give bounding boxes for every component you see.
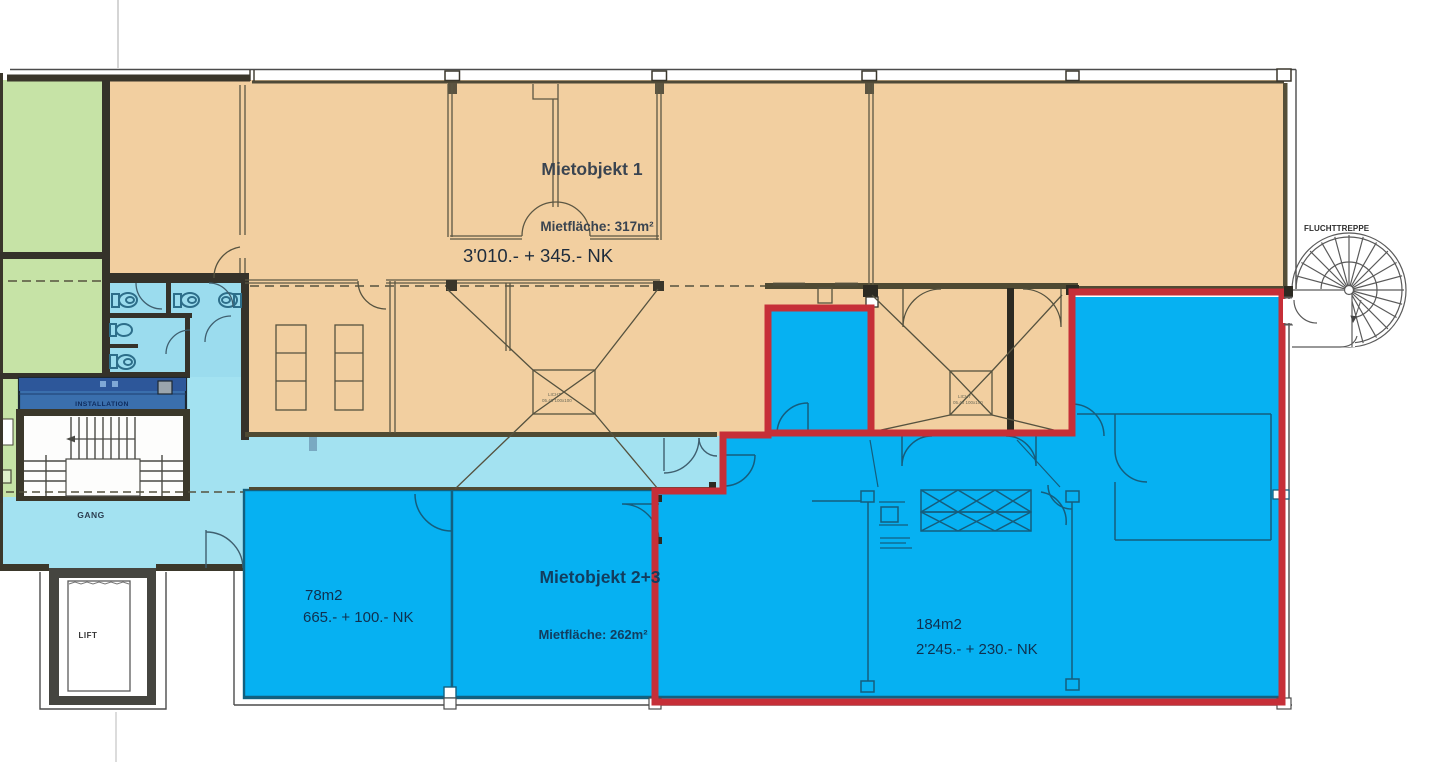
svg-text:78m2: 78m2 [305,587,343,604]
svg-text:3'010.- + 345.- NK: 3'010.- + 345.- NK [463,245,614,266]
svg-text:184m2: 184m2 [916,616,962,633]
svg-text:05.48 100x100: 05.48 100x100 [953,400,983,405]
svg-text:2'245.- + 230.- NK: 2'245.- + 230.- NK [916,641,1038,658]
svg-text:INSTALLATION: INSTALLATION [75,401,129,408]
svg-text:05.48 100x100: 05.48 100x100 [542,398,572,403]
svg-text:LICHT: LICHT [548,392,561,397]
svg-text:Mietobjekt 1: Mietobjekt 1 [541,159,642,179]
svg-text:LIFT: LIFT [79,631,98,640]
svg-text:665.- + 100.- NK: 665.- + 100.- NK [303,609,413,626]
svg-text:Mietfläche: 317m²: Mietfläche: 317m² [540,219,654,234]
svg-text:Mietobjekt 2+3: Mietobjekt 2+3 [539,567,660,587]
svg-text:Mietfläche: 262m²: Mietfläche: 262m² [538,627,648,642]
svg-text:GANG: GANG [77,510,105,520]
svg-text:FLUCHTTREPPE: FLUCHTTREPPE [1304,224,1370,233]
svg-text:LICHT: LICHT [958,394,971,399]
